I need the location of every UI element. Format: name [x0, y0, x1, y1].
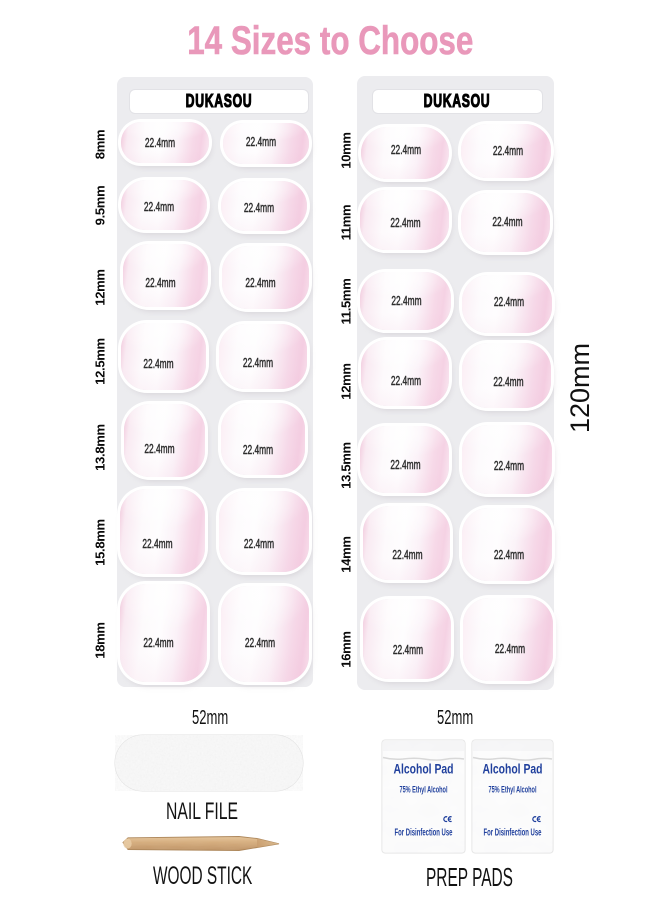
svg-text:75% Ethyl Alcohol: 75% Ethyl Alcohol: [489, 785, 537, 796]
svg-text:For Disinfection Use: For Disinfection Use: [484, 828, 542, 839]
svg-text:Alcohol Pad: Alcohol Pad: [483, 761, 543, 777]
svg-text:75% Ethyl Alcohol: 75% Ethyl Alcohol: [400, 785, 448, 796]
svg-text:For Disinfection Use: For Disinfection Use: [395, 828, 453, 839]
svg-text:Alcohol Pad: Alcohol Pad: [394, 761, 454, 777]
